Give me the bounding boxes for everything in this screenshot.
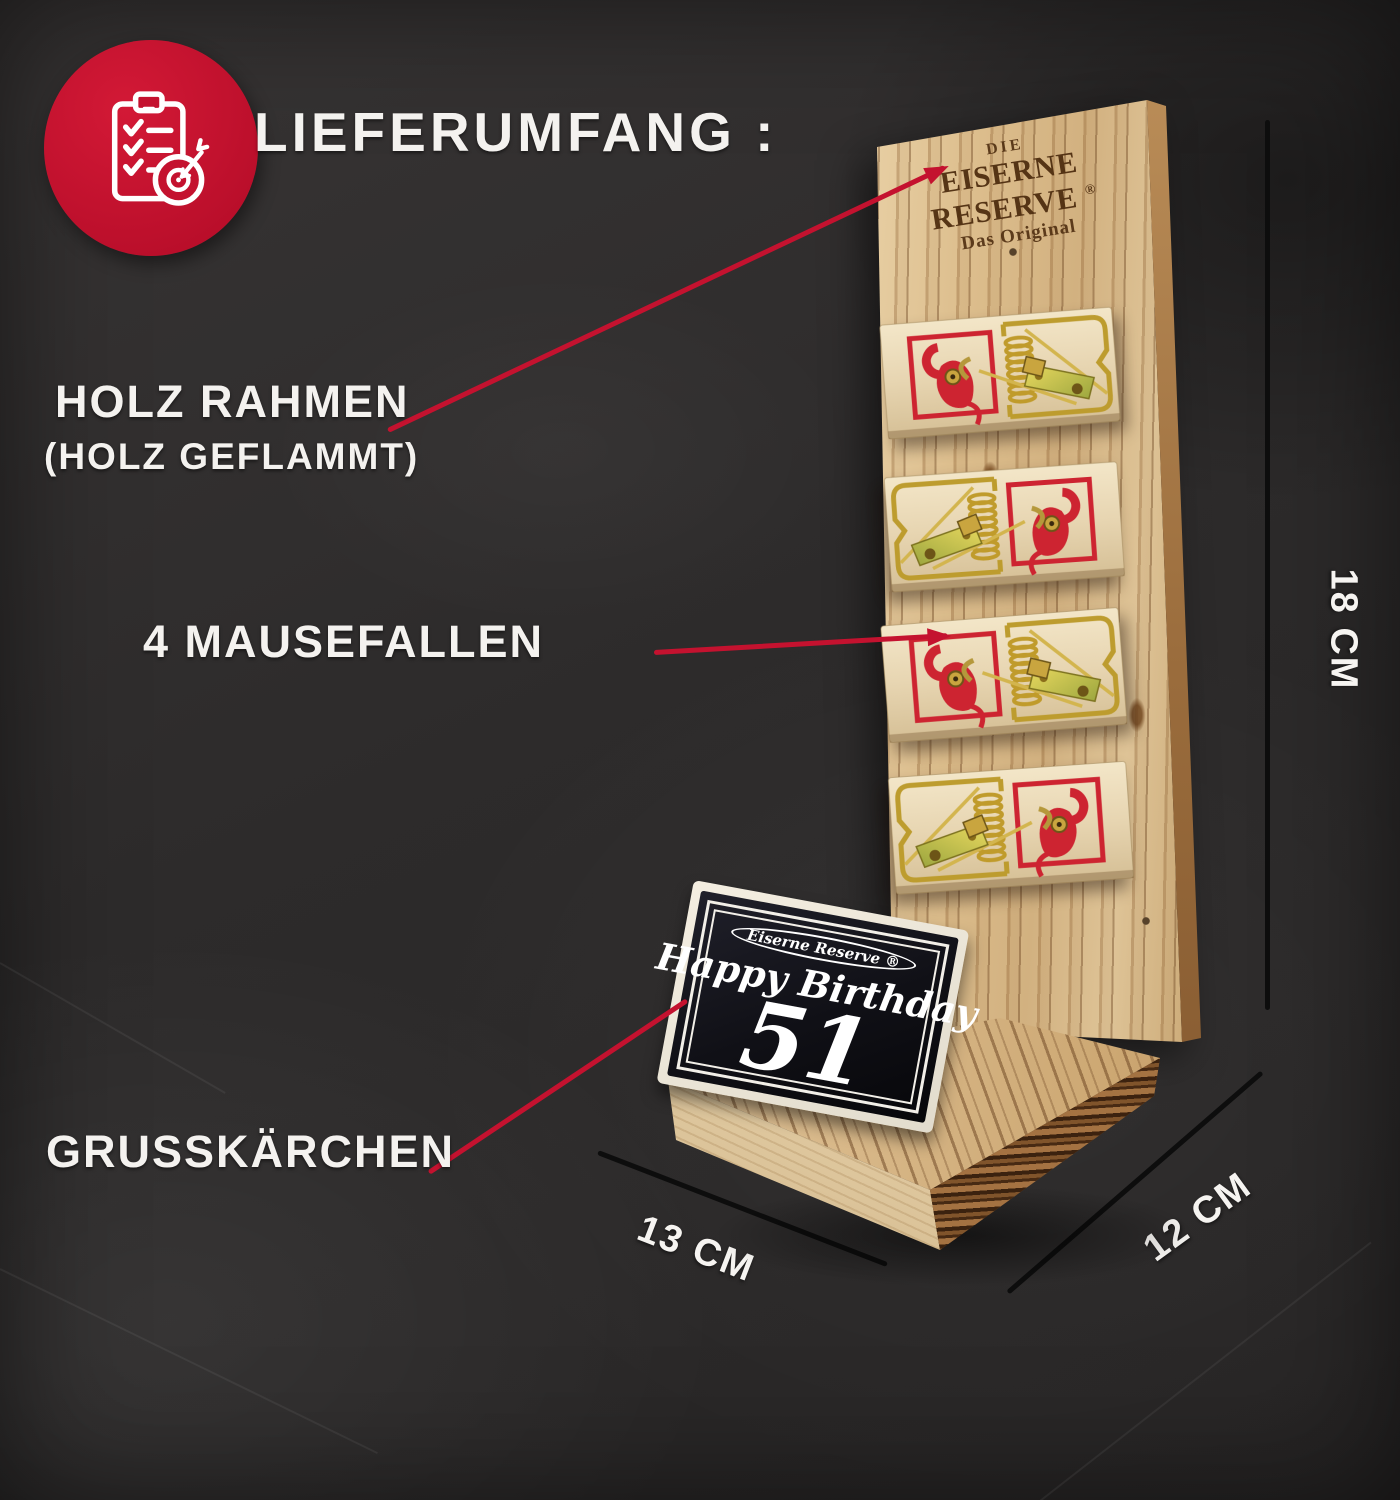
label-holz-rahmen: HOLZ RAHMEN	[55, 376, 409, 428]
page-title: LIEFERUMFANG :	[254, 100, 777, 164]
header-badge	[44, 40, 258, 256]
greeting-card-number: 51	[735, 987, 878, 1101]
mousetrap-icon	[878, 454, 1129, 603]
mousetrap-3	[877, 601, 1134, 752]
label-holz-geflammt: (HOLZ GEFLAMMT)	[44, 436, 419, 478]
clipboard-checklist-target-icon	[85, 82, 217, 214]
label-mausefallen: 4 MAUSEFALLEN	[143, 616, 544, 668]
mousetrap-4	[881, 750, 1137, 909]
mousetrap-icon	[873, 301, 1129, 448]
mousetrap-icon	[881, 750, 1137, 909]
mousetrap-icon	[877, 601, 1134, 752]
mousetrap-2	[878, 454, 1129, 603]
label-grusskaerchen: GRUSSKÄRCHEN	[46, 1126, 455, 1178]
registered-mark: ®	[1084, 181, 1098, 198]
arrowhead-icon	[927, 626, 952, 645]
product-infographic: 18 CM 13 CM 12 CM DIE EISERNE RESERVE ® …	[0, 0, 1400, 1500]
mousetrap-1	[873, 301, 1129, 448]
